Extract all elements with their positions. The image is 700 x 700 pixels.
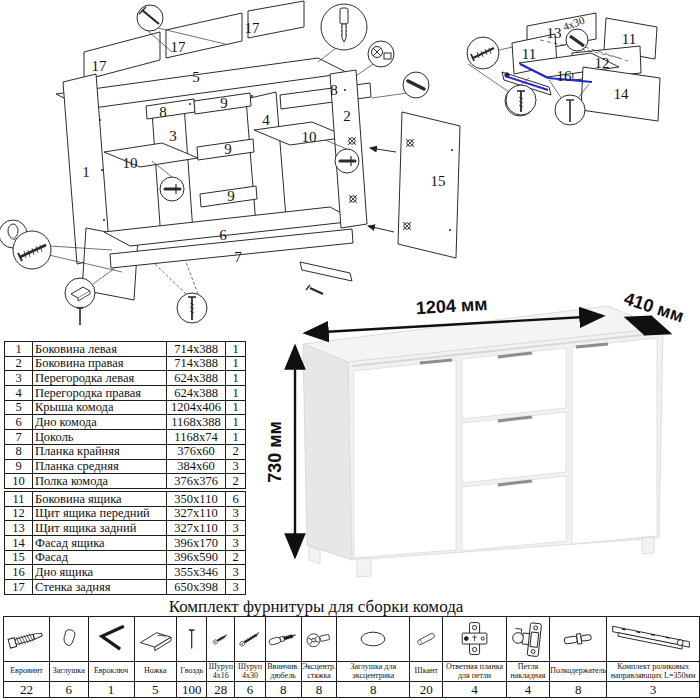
parts-row: 3Перегородка левая624x3881 [5,371,246,386]
chest-drawer-3 [462,476,566,551]
parts-row: 13Щит ящика задний327x1103 [5,521,246,536]
hardware-item-name: Заглушка для эксцентрика [337,662,410,682]
callout-screw2-icon [177,293,207,323]
part-size: 1168x74 [167,430,226,445]
hardware-item-name: Евровинт [4,662,50,682]
screw-small-icon [207,617,235,662]
chest-drawer-1 [462,348,566,419]
hardware-item-qty: 6 [235,682,266,698]
hardware-item-name: Эксцентр. стяжка [301,662,337,682]
part-qty: 1 [226,356,246,371]
svg-text:11: 11 [622,31,636,47]
hardware-table: ЕвровинтЗаглушкаЕвроключНожкаГвоздьШуруп… [3,616,700,698]
svg-text:10: 10 [302,129,317,145]
part-name: Полка комода [33,474,167,489]
part-name: Планка крайняя [33,444,167,459]
parts-row: 11Боковина ящика350x1106 [5,492,246,507]
part-size: 650x398 [167,580,226,595]
part-qty: 2 [226,550,246,565]
hardware-item-qty: 6 [49,682,88,698]
chest-left-door [354,360,456,558]
hex-key-icon [88,617,134,662]
part-qty: 2 [226,474,246,489]
part-name: Щит ящика передний [33,506,167,521]
part-size: 714x388 [167,342,226,357]
part-size: 396x170 [167,536,226,551]
part-size: 624x388 [167,371,226,386]
threaded-dowel-icon [265,617,301,662]
part-name: Стенка задняя [33,580,167,595]
part-name: Боковина левая [33,342,167,357]
part-number: 17 [5,580,33,595]
part-name: Крыша комода [33,400,167,415]
parts-row: 2Боковина правая714x3881 [5,356,246,371]
svg-text:17: 17 [92,58,108,74]
nail-icon [177,617,207,662]
parts-row: 6Дно комода1168x3881 [5,415,246,430]
part-name: Перегородка левая [33,371,167,386]
hardware-item-name: Ввинчив. дюбель [265,662,301,682]
part-qty: 3 [226,521,246,536]
part-qty: 1 [226,386,246,401]
hardware-item-qty: 8 [301,682,337,698]
svg-text:16: 16 [557,68,573,84]
svg-text:4: 4 [262,112,270,128]
part-size: 327x110 [167,521,226,536]
hardware-item-name: Шуруп 4x16 [207,662,235,682]
part-number: 1 [5,342,33,357]
callout-cam-lock-icon [368,41,394,67]
svg-text:2: 2 [343,108,351,124]
cam-lock-icon [301,617,337,662]
hardware-item-qty: 4 [506,682,549,698]
svg-text:1: 1 [82,164,90,180]
wood-dowel-icon [410,617,443,662]
part-name: Дно комода [33,415,167,430]
part-number: 5 [5,400,33,415]
callout-shelf-pin2-icon [335,149,359,173]
part-size: 355x346 [167,565,226,580]
hardware-item-qty: 1 [88,682,134,698]
svg-text:7: 7 [234,249,242,265]
parts-row: 8Планка крайняя376x602 [5,444,246,459]
part-size: 376x376 [167,474,226,489]
part-qty: 1 [226,342,246,357]
part-number: 11 [5,492,33,507]
svg-text:6: 6 [219,227,227,243]
part-name: Перегородка правая [33,386,167,401]
part-qty: 1 [226,371,246,386]
callout-nail2-icon [555,95,585,125]
part-size: 327x110 [167,506,226,521]
svg-text:9: 9 [224,141,232,157]
part-number: 9 [5,459,33,474]
svg-text:9: 9 [227,188,235,204]
exploded-assembly-diagram [0,1,535,325]
callout-confirmat2-icon [467,37,499,69]
svg-text:12: 12 [595,55,610,71]
part-number: 13 [5,521,33,536]
callout-threaded-dowel-icon [321,4,367,50]
part-number: 2 [5,356,33,371]
hardware-item-name: Петля накладная [506,662,549,682]
cam-cap-icon [337,617,410,662]
parts-row: 10Полка комода376x3762 [5,474,246,489]
part-qty: 1 [226,400,246,415]
svg-text:8: 8 [330,82,338,98]
part-number: 8 [5,444,33,459]
hardware-item-qty: 8 [550,682,607,698]
hardware-item-name: Заглушка [49,662,88,682]
part-qty: 3 [226,506,246,521]
drawer-slide-part [300,262,352,281]
callout-dowel-icon [403,72,429,98]
part-number: 14 [5,536,33,551]
partition-left [152,105,193,239]
parts-row: 7Цоколь1168x741 [5,430,246,445]
drawer-slide-icon [607,617,700,662]
parts-row: 14Фасад ящика396x1703 [5,536,246,551]
parts-table-lower: 11Боковина ящика350x110612Щит ящика пере… [4,491,246,595]
cap-icon [49,617,88,662]
part-name: Боковина правая [33,356,167,371]
part-qty: 3 [226,536,246,551]
hardware-icon-row [4,617,700,662]
parts-row: 9Планка средняя384x603 [5,459,246,474]
parts-row: 5Крыша комода1204x4061 [5,400,246,415]
svg-text:17: 17 [245,20,261,36]
part-name: Щит ящика задний [33,521,167,536]
dimension-drawing: 1204 мм 410 мм 730 мм [265,288,686,577]
part-size: 624x388 [167,386,226,401]
hardware-item-qty: 5 [134,682,176,698]
svg-text:3: 3 [169,128,177,144]
part-number: 15 [5,550,33,565]
hardware-item-name: Гвоздь [177,662,207,682]
hardware-name-row: ЕвровинтЗаглушкаЕвроключНожкаГвоздьШуруп… [4,662,700,682]
parts-row: 4Перегородка правая624x3881 [5,386,246,401]
part-name: Фасад [33,550,167,565]
part-size: 384x60 [167,459,226,474]
callout-screw3-icon [506,85,536,115]
part-qty: 3 [226,459,246,474]
part-number: 10 [5,474,33,489]
assembly-instruction-sheet: 17 17 17 5 1 2 3 4 8 8 9 9 9 10 10 6 7 1… [0,0,700,700]
parts-row: 15Фасад396x5902 [5,550,246,565]
part-name: Боковина ящика [33,492,167,507]
part-qty: 1 [226,415,246,430]
part-size: 1168x388 [167,415,226,430]
hardware-item-qty: 20 [410,682,443,698]
screw-large-icon [235,617,266,662]
hardware-item-qty: 3 [607,682,700,698]
hardware-item-name: Ножка [134,662,176,682]
hinge-icon [506,617,549,662]
part-number: 4 [5,386,33,401]
chest-left-face [303,344,352,560]
height-dimension: 730 мм [265,421,285,483]
hardware-item-qty: 28 [207,682,235,698]
parts-row: 16Дно ящика355x3463 [5,565,246,580]
svg-text:5: 5 [192,69,200,85]
rail-outer [146,99,195,119]
hardware-item-qty: 100 [177,682,207,698]
hardware-item-qty: 8 [265,682,301,698]
part-qty: 3 [226,580,246,595]
part-number: 6 [5,415,33,430]
part-size: 376x60 [167,444,226,459]
width-dimension: 1204 мм [415,294,488,318]
callout-shelf-pin-icon [160,177,184,201]
shelf-pin-icon [550,617,607,662]
part-number: 16 [5,565,33,580]
confirmat-screw-icon [4,617,50,662]
svg-text:15: 15 [431,173,446,189]
svg-text:10: 10 [123,155,138,171]
hardware-item-name: Шуруп 4x30 [235,662,266,682]
chest-right-door [572,338,657,544]
hardware-item-qty: 22 [4,682,50,698]
hardware-item-qty: 8 [337,682,410,698]
foot-icon [134,617,176,662]
part-qty: 3 [226,565,246,580]
part-qty: 6 [226,492,246,507]
part-qty: 1 [226,430,246,445]
hardware-item-name: Полкодержатель [550,662,607,682]
hardware-kit-title: Комплект фурнитуры для сборки комода [0,597,632,617]
part-number: 12 [5,506,33,521]
parts-row: 17Стенка задняя650x3983 [5,580,246,595]
hardware-item-qty: 4 [443,682,506,698]
hardware-item-name: Шкант [410,662,443,682]
door-panel [398,112,460,258]
hardware-item-name: Евроключ [88,662,134,682]
part-number: 3 [5,371,33,386]
part-qty: 2 [226,444,246,459]
part-size: 1204x406 [167,400,226,415]
hardware-qty-row: 22615100286888204483 [4,682,700,698]
parts-table-upper: 1Боковина левая714x38812Боковина правая7… [4,341,246,489]
svg-text:9: 9 [220,95,228,111]
part-name: Цоколь [33,430,167,445]
part-name: Дно ящика [33,565,167,580]
part-name: Планка средняя [33,459,167,474]
svg-text:11: 11 [522,46,536,62]
callout-nail-icon [137,5,163,31]
svg-text:17: 17 [171,39,187,55]
hardware-item-name: Комплект роликовых направляющих L=350мм [607,662,700,682]
part-name: Фасад ящика [33,536,167,551]
parts-row: 1Боковина левая714x3881 [5,342,246,357]
callout-cam2-icon [566,29,588,51]
part-number: 7 [5,430,33,445]
part-size: 396x590 [167,550,226,565]
part-size: 350x110 [167,492,226,507]
hinge-plate-icon [443,617,506,662]
part-size: 714x388 [167,356,226,371]
chest-drawer-2 [462,412,566,483]
svg-text:13: 13 [547,25,562,41]
svg-text:14: 14 [614,86,630,102]
hardware-item-name: Ответная планка для петли [443,662,506,682]
svg-text:8: 8 [159,104,167,120]
callout-confirmat-icon [13,231,51,269]
parts-row: 12Щит ящика передний327x1103 [5,506,246,521]
callout-foot-icon [65,278,95,325]
